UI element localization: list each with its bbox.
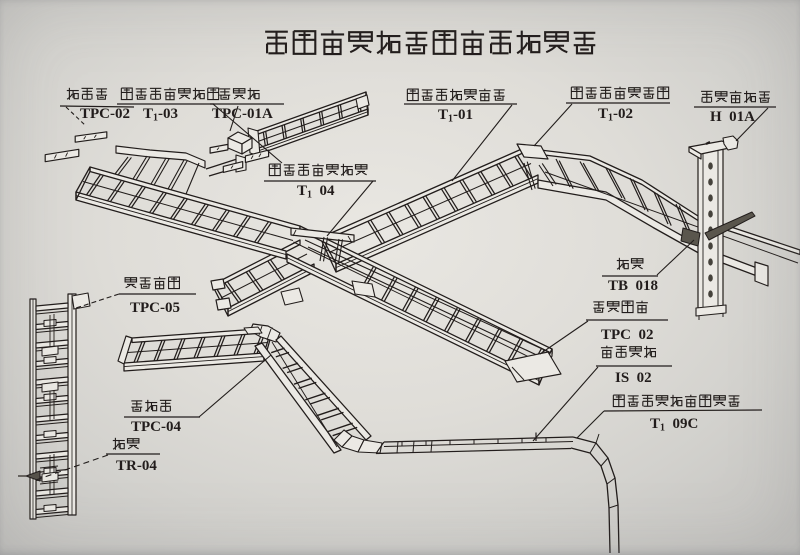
svg-text:T1-01: T1-01 <box>438 107 473 125</box>
svg-text:IS 02: IS 02 <box>615 370 652 386</box>
svg-text:TB 018: TB 018 <box>608 278 658 294</box>
svg-text:TPC-04: TPC-04 <box>131 419 181 435</box>
svg-text:T1 04: T1 04 <box>297 183 335 201</box>
svg-text:T1-02: T1-02 <box>598 106 633 124</box>
svg-text:H 01A: H 01A <box>710 109 755 125</box>
svg-text:TR-04: TR-04 <box>116 458 157 474</box>
svg-text:T1-03: T1-03 <box>143 106 178 124</box>
svg-text:TPC-05: TPC-05 <box>130 300 180 316</box>
svg-text:T1 09C: T1 09C <box>650 416 698 434</box>
svg-text:TPC-02: TPC-02 <box>80 106 130 122</box>
svg-text:TPC 02: TPC 02 <box>601 327 654 343</box>
svg-text:TPC-01A: TPC-01A <box>212 106 273 122</box>
